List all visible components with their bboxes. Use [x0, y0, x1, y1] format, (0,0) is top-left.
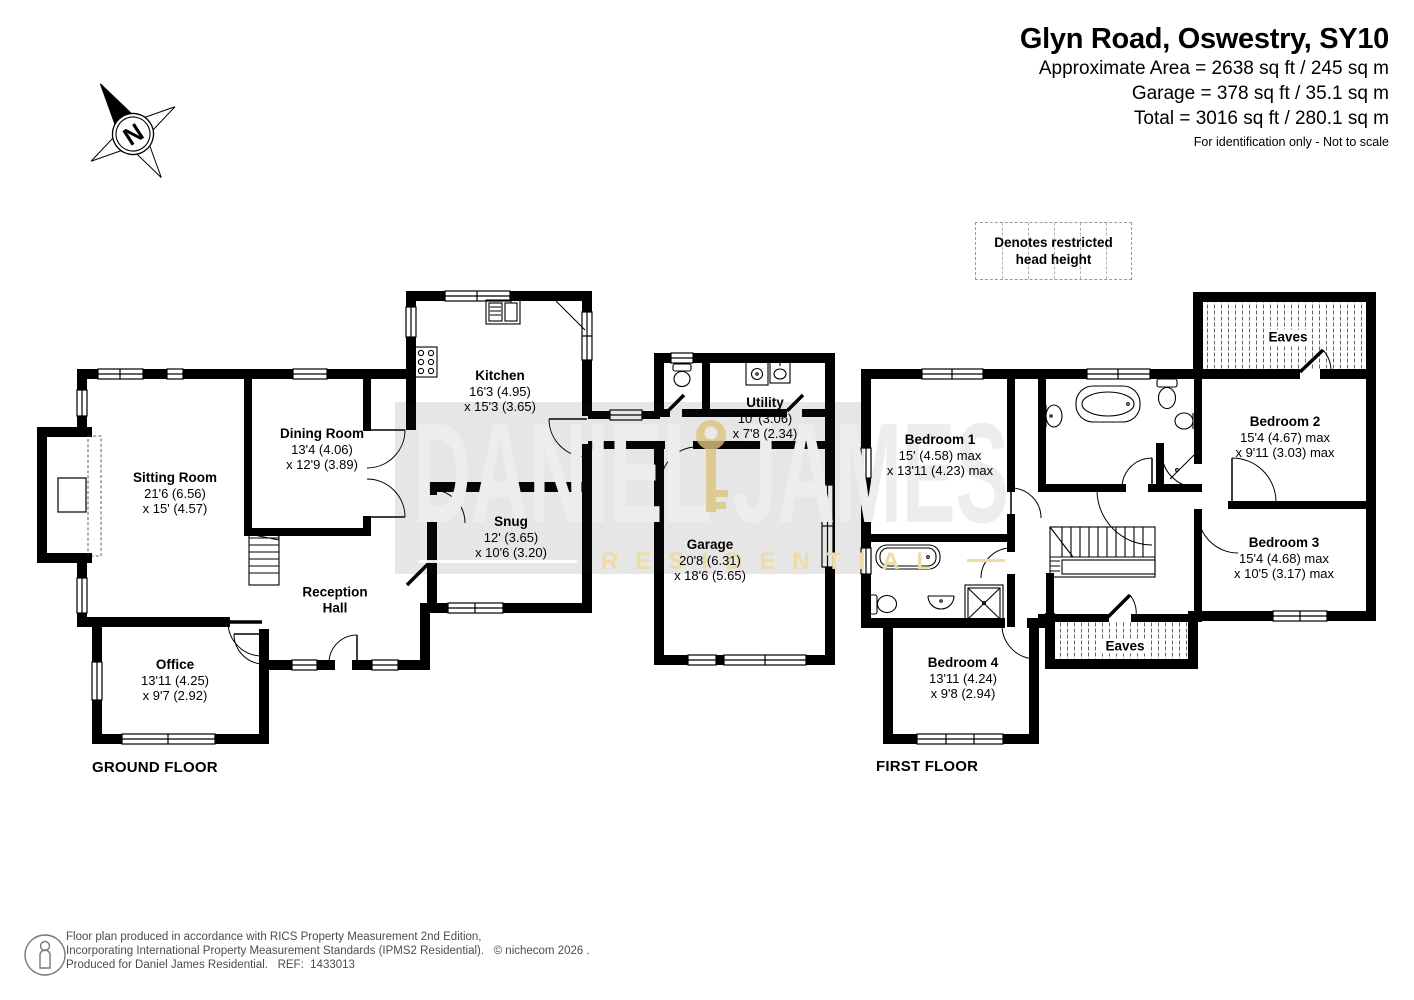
footer-line3: Produced for Daniel James Residential. R…: [66, 959, 355, 971]
room-label-kitchen: Kitchen 16'3 (4.95) x 15'3 (3.65): [464, 368, 536, 415]
disclaimer: For identification only - Not to scale: [1020, 135, 1389, 149]
room-label-office: Office 13'11 (4.25) x 9'7 (2.92): [141, 657, 209, 704]
floorplan-page: N: [0, 0, 1414, 1000]
compass-icon: N: [58, 56, 203, 204]
room-label-sitting: Sitting Room 21'6 (6.56) x 15' (4.57): [133, 470, 217, 517]
person-icon: [25, 935, 65, 975]
legend-text: Denotes restricted head height: [989, 234, 1119, 268]
garage-area: Garage = 378 sq ft / 35.1 sq m: [1020, 81, 1389, 106]
ensuite-fixtures: [870, 545, 1003, 622]
room-label-utility: Utility 10' (3.06) x 7'8 (2.34): [733, 395, 798, 442]
room-label-garage: Garage 20'8 (6.31) x 18'6 (5.65): [674, 537, 746, 584]
utility-appliances: [746, 362, 790, 385]
wc-toilet-icon: [673, 364, 691, 387]
eaves-label-top: Eaves: [1264, 330, 1311, 345]
footer: Floor plan produced in accordance with R…: [66, 930, 590, 972]
room-label-snug: Snug 12' (3.65) x 10'6 (3.20): [475, 514, 547, 561]
footer-line1: Floor plan produced in accordance with R…: [66, 931, 482, 943]
ground-stairs: [249, 530, 279, 585]
first-floor-stairs: [1050, 527, 1155, 577]
room-label-bedroom1: Bedroom 1 15' (4.58) max x 13'11 (4.23) …: [887, 432, 993, 479]
bathroom-fixtures: [1046, 379, 1196, 487]
room-label-bedroom3: Bedroom 3 15'4 (4.68) max x 10'5 (3.17) …: [1234, 535, 1334, 582]
room-label-reception-hall: Reception Hall: [302, 585, 367, 616]
header: Glyn Road, Oswestry, SY10 Approximate Ar…: [1020, 22, 1389, 149]
page-title: Glyn Road, Oswestry, SY10: [1020, 22, 1389, 56]
ground-floor-title: GROUND FLOOR: [92, 759, 218, 776]
room-label-bedroom2: Bedroom 2 15'4 (4.67) max x 9'11 (3.03) …: [1235, 414, 1334, 461]
restricted-head-height-legend: Denotes restricted head height: [975, 222, 1132, 280]
first-floor-title: FIRST FLOOR: [876, 758, 978, 775]
eaves-label-bottom: Eaves: [1101, 639, 1148, 654]
footer-line2: Incorporating International Property Mea…: [66, 945, 590, 957]
room-label-dining: Dining Room 13'4 (4.06) x 12'9 (3.89): [280, 426, 364, 473]
approximate-area: Approximate Area = 2638 sq ft / 245 sq m: [1020, 56, 1389, 81]
total-area: Total = 3016 sq ft / 280.1 sq m: [1020, 106, 1389, 131]
fireplace: [58, 478, 86, 512]
kitchen-fixtures: [415, 299, 585, 377]
room-label-bedroom4: Bedroom 4 13'11 (4.24) x 9'8 (2.94): [928, 655, 999, 702]
